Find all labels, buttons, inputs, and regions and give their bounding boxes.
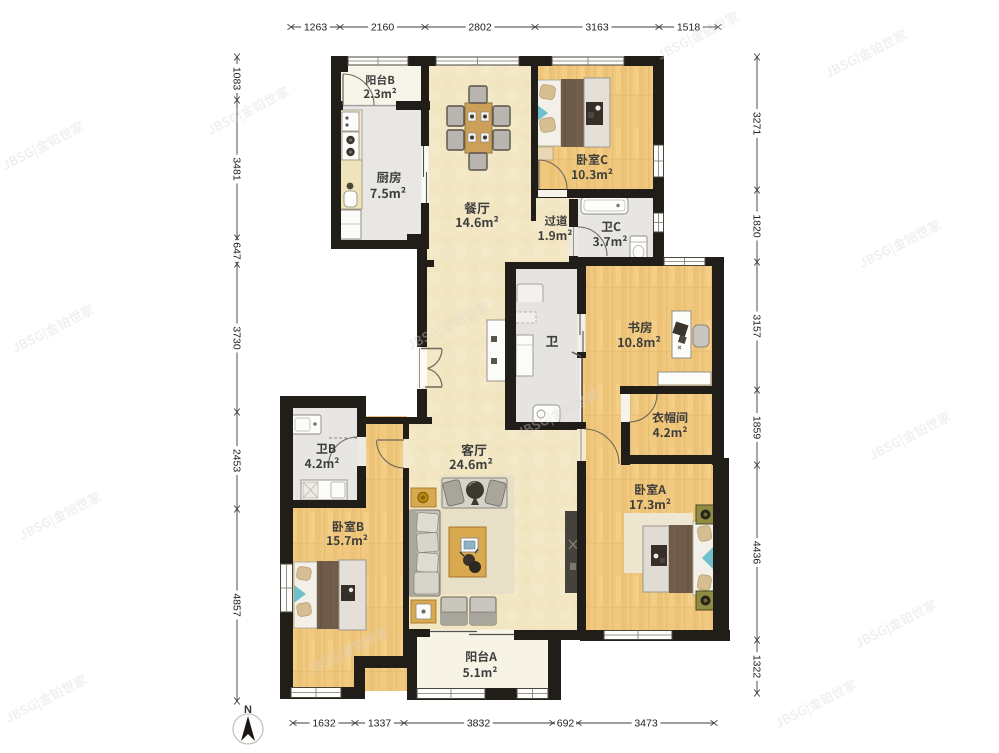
svg-text:1632: 1632 xyxy=(312,718,336,730)
svg-text:3730: 3730 xyxy=(230,326,242,350)
svg-text:3481: 3481 xyxy=(230,157,242,181)
svg-text:4436: 4436 xyxy=(750,541,762,565)
svg-text:3157: 3157 xyxy=(750,314,762,338)
svg-text:2160: 2160 xyxy=(371,22,395,34)
svg-text:N: N xyxy=(244,704,252,716)
svg-text:3271: 3271 xyxy=(750,112,762,136)
svg-text:1820: 1820 xyxy=(750,214,762,238)
svg-text:3473: 3473 xyxy=(634,718,658,730)
svg-text:3832: 3832 xyxy=(467,718,491,730)
svg-text:2802: 2802 xyxy=(468,22,492,34)
svg-text:1337: 1337 xyxy=(368,718,392,730)
svg-text:1322: 1322 xyxy=(750,655,762,679)
svg-text:2453: 2453 xyxy=(230,449,242,473)
svg-text:1859: 1859 xyxy=(750,416,762,440)
svg-text:1083: 1083 xyxy=(230,67,242,91)
svg-text:692: 692 xyxy=(557,718,575,730)
svg-text:4857: 4857 xyxy=(230,593,242,617)
svg-text:647: 647 xyxy=(230,242,242,260)
svg-text:1263: 1263 xyxy=(304,22,328,34)
svg-text:3163: 3163 xyxy=(585,22,609,34)
